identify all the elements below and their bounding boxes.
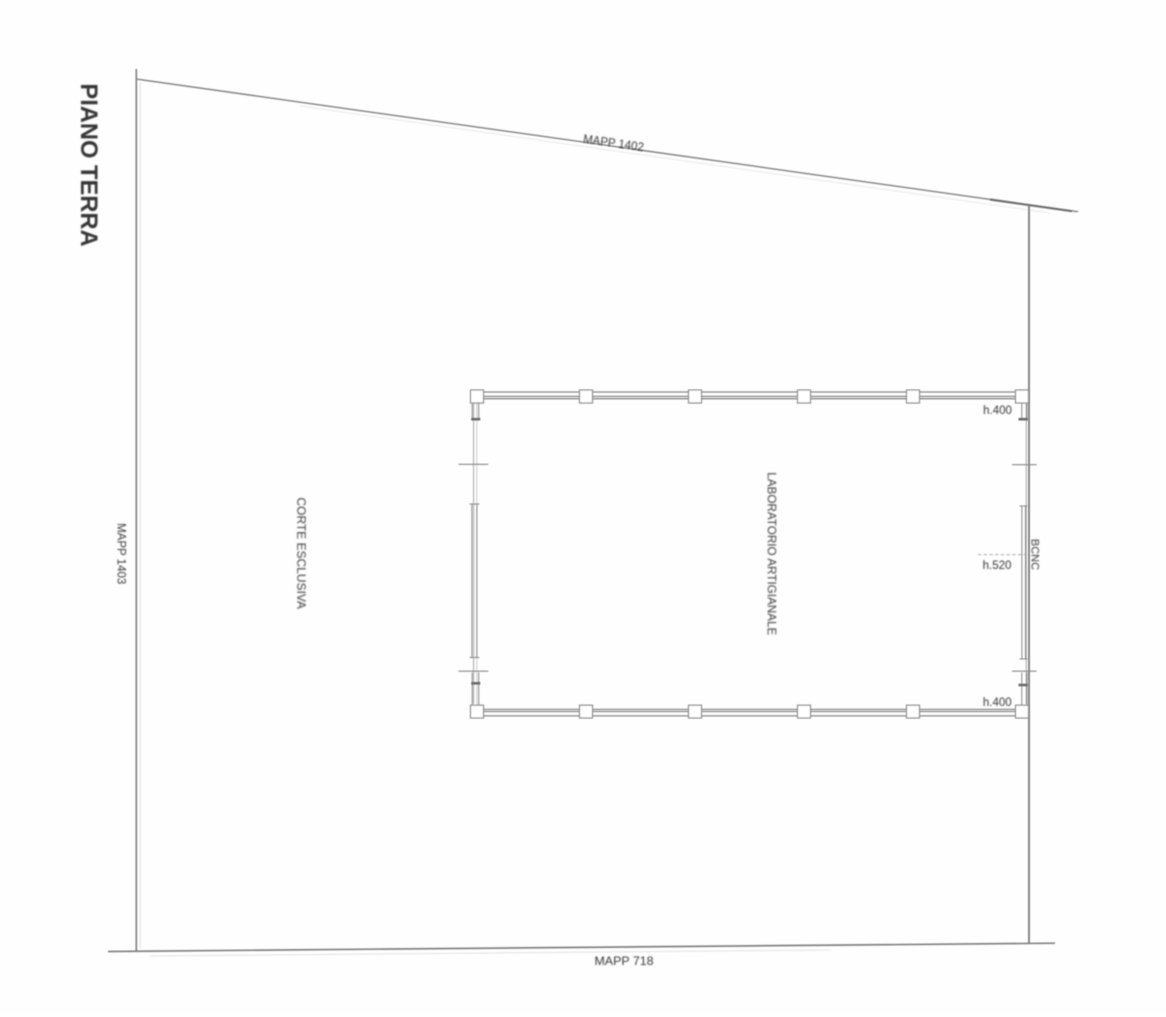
svg-text:MAPP 1403: MAPP 1403 bbox=[115, 523, 127, 584]
svg-text:MAPP 718: MAPP 718 bbox=[594, 954, 653, 968]
svg-text:BCNC: BCNC bbox=[1029, 539, 1041, 570]
svg-text:h.400: h.400 bbox=[983, 697, 1012, 709]
svg-text:LABORATORIO ARTIGIANALE: LABORATORIO ARTIGIANALE bbox=[765, 472, 778, 635]
svg-text:PIANO TERRA: PIANO TERRA bbox=[75, 83, 101, 246]
svg-text:h.520: h.520 bbox=[983, 560, 1012, 572]
svg-text:h.400: h.400 bbox=[983, 405, 1012, 417]
svg-text:CORTE ESCLUSIVA: CORTE ESCLUSIVA bbox=[294, 497, 308, 609]
